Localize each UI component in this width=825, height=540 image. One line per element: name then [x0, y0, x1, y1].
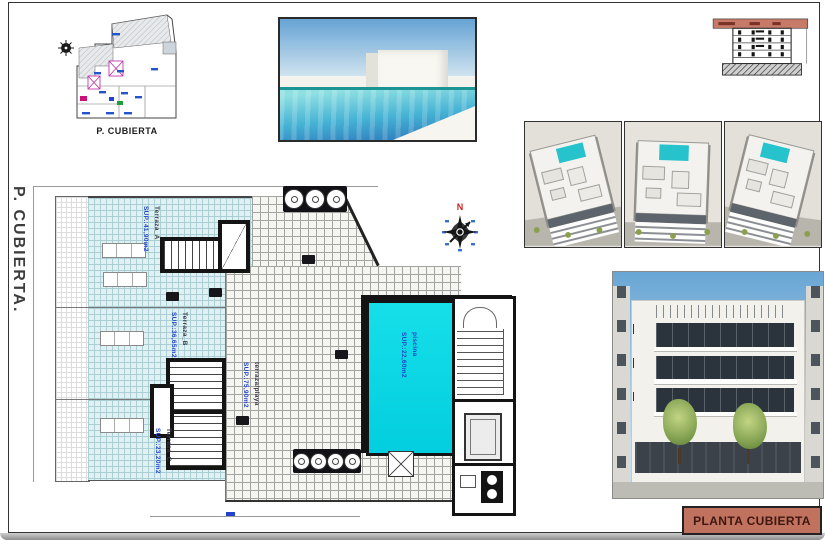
- plan-stair-core: [452, 296, 516, 516]
- sheet-title-box: PLANTA CUBIERTA: [682, 506, 822, 535]
- facade-window-band-2: [656, 356, 794, 380]
- compass-star-icon: [441, 212, 479, 256]
- skylight-circle: [284, 189, 304, 209]
- sheet-side-label: P. CUBIERTA.: [9, 186, 27, 336]
- stair-curve: [463, 307, 497, 328]
- label-piscina: piscina SUP.:22,60m2: [398, 332, 420, 378]
- pool-render-image: [278, 17, 477, 142]
- ac-unit: [166, 292, 179, 301]
- terrace-divider-ab: [55, 307, 225, 308]
- plan-walkway-strip: [55, 196, 90, 482]
- plan-pool: [366, 300, 458, 456]
- label-terraza-c: Terraza_C SUP.:23,20m2: [152, 428, 174, 474]
- pool-render-waterline: [280, 87, 475, 90]
- facade-left-pier: [632, 301, 654, 442]
- facade-render-image: [612, 271, 824, 499]
- dimension-line-bottom: [150, 516, 360, 517]
- section-ground-hatch: [722, 64, 801, 75]
- facade-sidewalk: [613, 482, 823, 498]
- section-drawing: [710, 12, 814, 82]
- skylight-circle: [327, 453, 344, 470]
- skylight-circle: [305, 189, 325, 209]
- sheet-title: PLANTA CUBIERTA: [693, 514, 811, 528]
- stair-treads: [457, 329, 504, 395]
- stair-bc-upper-flight: [166, 358, 226, 414]
- label-terraza-playa: terraza/playa SUP.:75,90m2: [240, 362, 262, 408]
- tree: [733, 403, 767, 449]
- facade-slab-1: [653, 347, 798, 352]
- key-plan-drawing: [55, 8, 215, 128]
- sun-icon: [58, 40, 74, 56]
- facade-neighbor-left: [613, 286, 630, 498]
- ac-unit: [236, 416, 249, 425]
- label-terraza-b: Terraza_B SUP.:36,65m2: [168, 312, 190, 358]
- compass-north-label: N: [440, 202, 480, 212]
- skylight-circle: [310, 453, 327, 470]
- dimension-line-left: [33, 186, 34, 482]
- skylight-circle: [293, 453, 310, 470]
- ac-unit: [209, 288, 222, 297]
- facade-pier-window: [633, 358, 635, 368]
- compass-rose: N: [440, 202, 480, 264]
- tree-trunk: [678, 448, 681, 464]
- facade-ground-floor: [635, 442, 800, 473]
- sunbed: [100, 331, 144, 346]
- ac-unit: [302, 255, 315, 264]
- stair-a-landing: [218, 220, 250, 273]
- aerial-renders: [524, 121, 822, 248]
- plan-skylight-box-top: [283, 186, 347, 212]
- facade-window-band-1: [656, 323, 794, 347]
- sunbed: [100, 418, 144, 433]
- skylight-circle: [326, 189, 346, 209]
- vent-circle: [487, 489, 497, 499]
- ac-unit: [335, 350, 348, 359]
- label-terraza-a: Terraza_A SUP.:41,90m2: [140, 206, 162, 252]
- stair-a-flight: [160, 237, 226, 273]
- aerial-render-left: [524, 121, 622, 248]
- facade-slab-2: [653, 379, 798, 384]
- facade-main-building: [632, 301, 804, 482]
- key-plan-caption: P. CUBIERTA: [67, 126, 187, 136]
- facade-pier-window: [633, 324, 635, 334]
- aerial-render-right: [724, 121, 822, 248]
- facade-neighbor-right: [806, 286, 823, 498]
- key-plan: [55, 8, 215, 128]
- core-wall: [455, 399, 513, 402]
- plan-skylight-box-bottom: [293, 449, 361, 473]
- skylight-circle: [344, 453, 361, 470]
- facade-roof-railing: [649, 305, 787, 318]
- vent-circle: [487, 475, 497, 485]
- plan-shaft-x: [388, 451, 414, 477]
- aerial-render-center: [624, 121, 722, 248]
- tree-trunk: [747, 448, 750, 464]
- core-wall: [455, 463, 513, 466]
- dimension-mark: [226, 512, 235, 516]
- sunbed: [103, 272, 147, 287]
- elevator-shaft: [464, 413, 502, 461]
- plan-fixture: [460, 475, 476, 488]
- plan-vent-unit: [481, 471, 503, 503]
- stair-bc-lower-flight: [166, 410, 226, 470]
- facade-pier-window: [633, 392, 635, 402]
